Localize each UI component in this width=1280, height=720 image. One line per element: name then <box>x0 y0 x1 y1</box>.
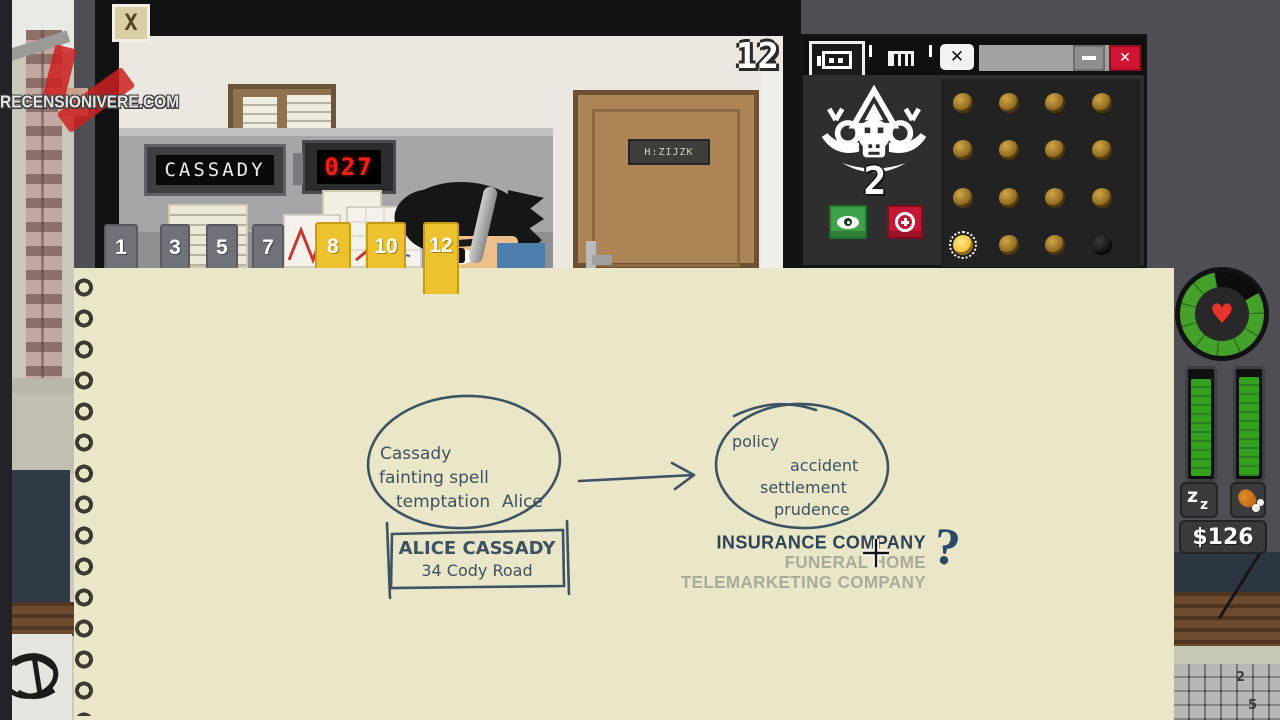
shirt-collar <box>497 243 545 268</box>
coin[interactable] <box>1045 188 1065 208</box>
add-button[interactable] <box>887 205 923 239</box>
sleep-bar <box>1185 366 1217 482</box>
coin[interactable] <box>1092 93 1112 113</box>
club-titlebar: ✕ <box>803 37 1144 75</box>
coin[interactable] <box>1092 140 1112 160</box>
food-icon-badge <box>1230 482 1266 518</box>
money-value: $126 <box>1192 525 1253 550</box>
option-telemarketing-company[interactable]: TELEMARKETING COMPANY <box>634 573 926 594</box>
door-trim <box>761 72 783 268</box>
coin[interactable] <box>1045 235 1065 255</box>
coin[interactable] <box>1045 140 1065 160</box>
keyboard-key: 2 <box>1236 670 1245 685</box>
counter-bracket <box>293 153 303 185</box>
cam-tab-7[interactable]: 7 <box>252 224 284 270</box>
drumstick-bone <box>1257 499 1264 506</box>
spiral-binding <box>68 272 100 716</box>
clue-word[interactable]: policy <box>732 432 779 451</box>
cage-number: 12 <box>715 36 779 77</box>
monkey-club-window: ✕ <box>800 34 1147 268</box>
club-tab-close[interactable]: ✕ <box>937 43 977 71</box>
coin-selected[interactable] <box>953 235 973 255</box>
tab-label: 5 <box>216 236 228 260</box>
coin[interactable] <box>1092 188 1112 208</box>
cam-tab-1[interactable]: 1 <box>104 224 138 270</box>
name-display-text: CASSADY <box>156 155 273 185</box>
cage-small-icon <box>888 51 914 66</box>
close-icon: ✕ <box>940 44 974 70</box>
clue-word[interactable]: prudence <box>774 500 850 519</box>
game-screen: CASSADY 027 <box>0 0 1280 720</box>
clue-word[interactable]: Cassady <box>380 444 451 464</box>
tab-label: 10 <box>374 235 397 259</box>
door-handle <box>592 255 612 265</box>
cam-tab-3[interactable]: 3 <box>160 224 190 270</box>
desk-edge <box>1174 646 1280 664</box>
cam-tab-10[interactable]: 10 <box>366 222 406 270</box>
cam-tab-5[interactable]: 5 <box>206 224 238 270</box>
close-button[interactable] <box>1109 45 1141 71</box>
door-panel <box>592 109 740 267</box>
tab-label: 12 <box>429 234 452 258</box>
tab-separator <box>929 45 932 57</box>
dark-window-right <box>1174 552 1280 596</box>
sleep-icon-badge: z z <box>1180 482 1218 518</box>
deduction-answer-address: 34 Cody Road <box>396 561 558 580</box>
plus-icon <box>895 212 915 232</box>
coin-panel <box>941 79 1140 267</box>
club-tab-cage[interactable] <box>809 41 865 75</box>
coin[interactable] <box>999 188 1019 208</box>
cam-tab-12-active[interactable]: 12 <box>423 222 459 294</box>
health-ring: ♥ <box>1175 267 1269 361</box>
coin[interactable] <box>953 140 973 160</box>
tab-label: 7 <box>262 236 274 260</box>
coin[interactable] <box>999 235 1019 255</box>
cursor-crosshair <box>862 538 890 568</box>
coin-black[interactable] <box>1092 235 1112 255</box>
tab-label: 1 <box>115 236 127 260</box>
close-x-icon: X <box>124 11 137 36</box>
clue-word[interactable]: fainting spell <box>379 468 489 488</box>
door-sign: H:ZIJZK <box>628 139 710 165</box>
coin[interactable] <box>999 140 1019 160</box>
cage-latch <box>817 56 821 66</box>
coin[interactable] <box>953 188 973 208</box>
sleep-icon: z <box>1187 485 1198 507</box>
keyboard-key: 5 <box>1248 698 1257 713</box>
notepad-ink <box>74 268 1174 720</box>
tab-label: 3 <box>169 236 181 260</box>
sleep-bar-fill <box>1191 379 1211 476</box>
door-sign-text: H:ZIJZK <box>644 147 693 158</box>
cam-tab-8[interactable]: 8 <box>315 222 351 270</box>
club-tab-cage-small[interactable] <box>879 45 923 71</box>
sleep-icon: z <box>1200 497 1208 513</box>
counter-display: 027 <box>302 140 396 194</box>
hunger-bar <box>1233 366 1265 482</box>
door: H:ZIJZK <box>573 90 759 268</box>
clue-word[interactable]: accident <box>790 456 858 475</box>
clue-word[interactable]: temptation <box>396 492 490 512</box>
keyboard <box>1174 664 1280 720</box>
deduction-answer-name: ALICE CASSADY <box>396 538 558 559</box>
cage-icon <box>822 51 852 69</box>
wood-ledge-right <box>1174 592 1280 646</box>
minimize-button[interactable] <box>1073 45 1105 71</box>
clue-word[interactable]: settlement <box>760 478 847 497</box>
question-mark: ? <box>931 517 963 578</box>
heart-icon: ♥ <box>1180 272 1264 356</box>
tab-separator <box>869 45 872 57</box>
cam-close-button[interactable]: X <box>112 4 150 42</box>
name-display: CASSADY <box>144 144 286 196</box>
watch-button[interactable] <box>829 205 867 239</box>
eye-icon <box>837 216 859 229</box>
watermark-site: RECENSIONIVERE.COM <box>0 93 216 114</box>
counter-value: 027 <box>317 150 380 184</box>
tab-label: 8 <box>327 235 339 259</box>
money-display: $126 <box>1179 520 1267 554</box>
clue-word[interactable]: Alice <box>502 492 543 512</box>
coin[interactable] <box>953 93 973 113</box>
monkey-count: 2 <box>851 159 899 203</box>
hunger-bar-fill <box>1239 377 1259 476</box>
coin[interactable] <box>999 93 1019 113</box>
deduction-notepad: Cassady fainting spell temptation Alice … <box>74 268 1174 720</box>
coin[interactable] <box>1045 93 1065 113</box>
